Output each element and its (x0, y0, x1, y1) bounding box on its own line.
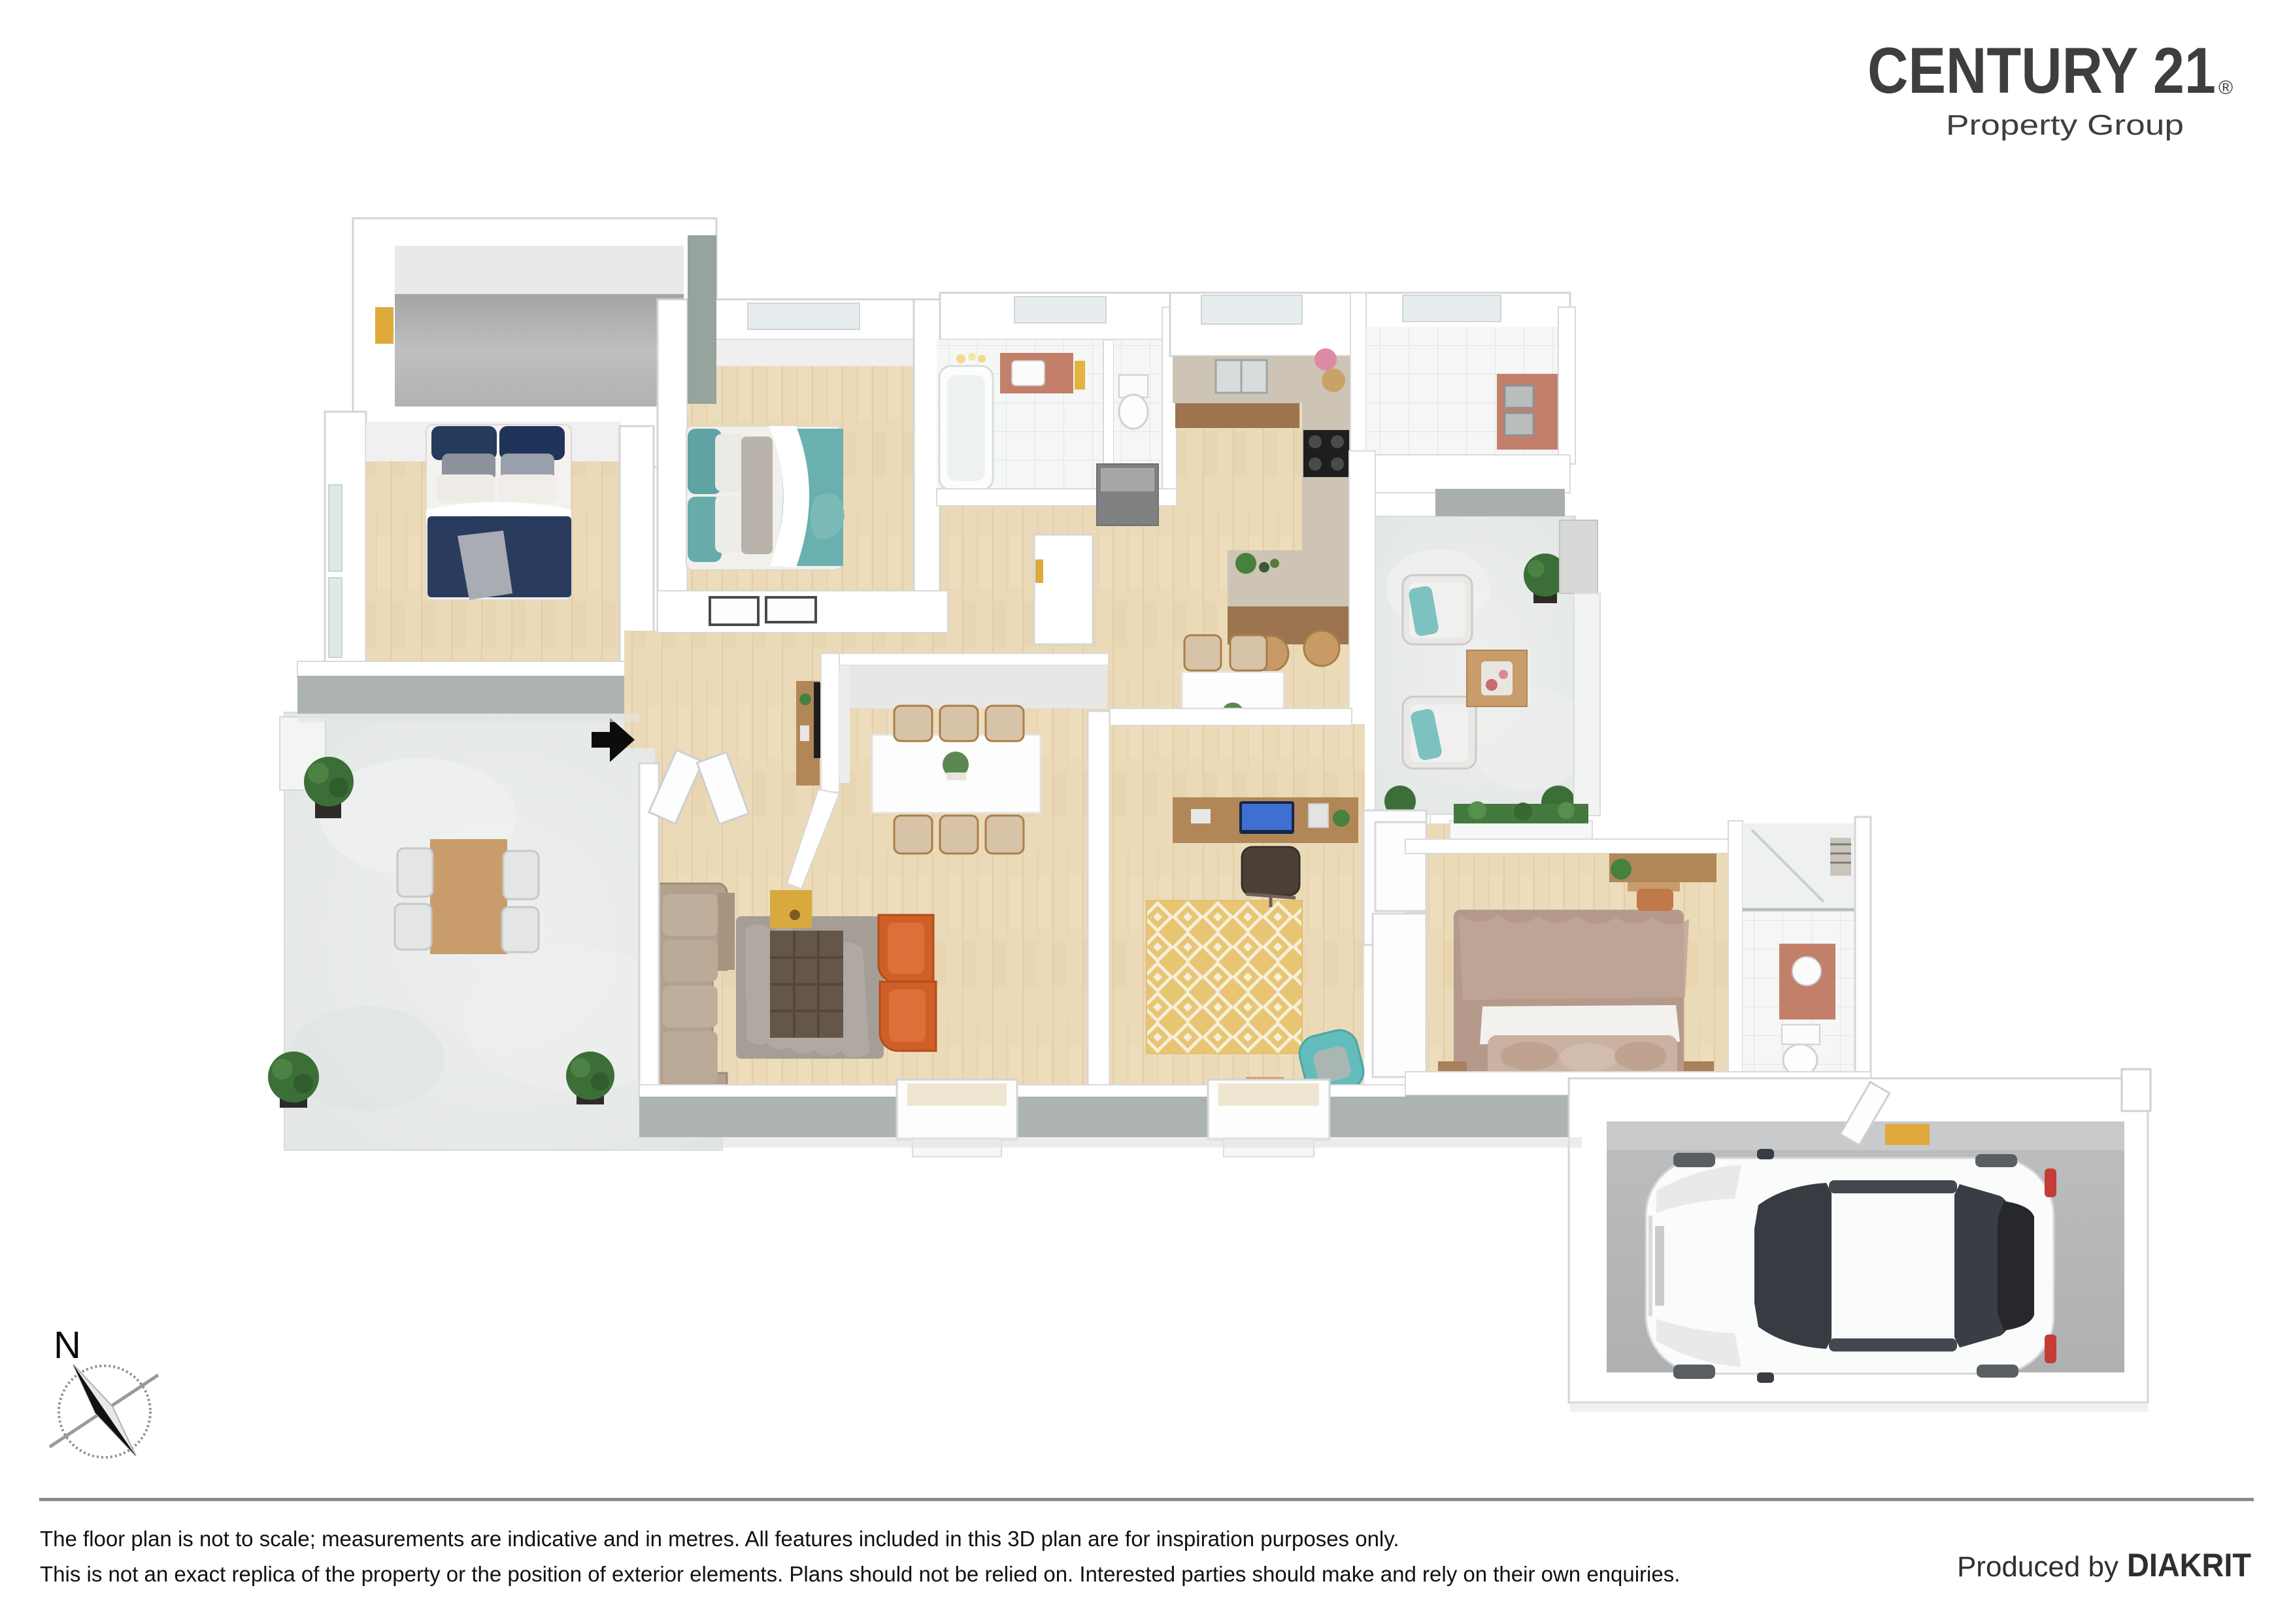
svg-text:CENTURY 21: CENTURY 21 (1867, 34, 2216, 107)
svg-text:DIAKRIT: DIAKRIT (2127, 1547, 2251, 1583)
svg-text:This is not an exact replica o: This is not an exact replica of the prop… (40, 1562, 1680, 1586)
svg-text:®: ® (2218, 77, 2233, 99)
svg-text:The floor plan is not to scale: The floor plan is not to scale; measurem… (40, 1527, 1399, 1551)
svg-text:N: N (54, 1324, 81, 1367)
svg-text:Produced by: Produced by (1957, 1551, 2118, 1583)
svg-text:Property Group: Property Group (1946, 109, 2184, 141)
